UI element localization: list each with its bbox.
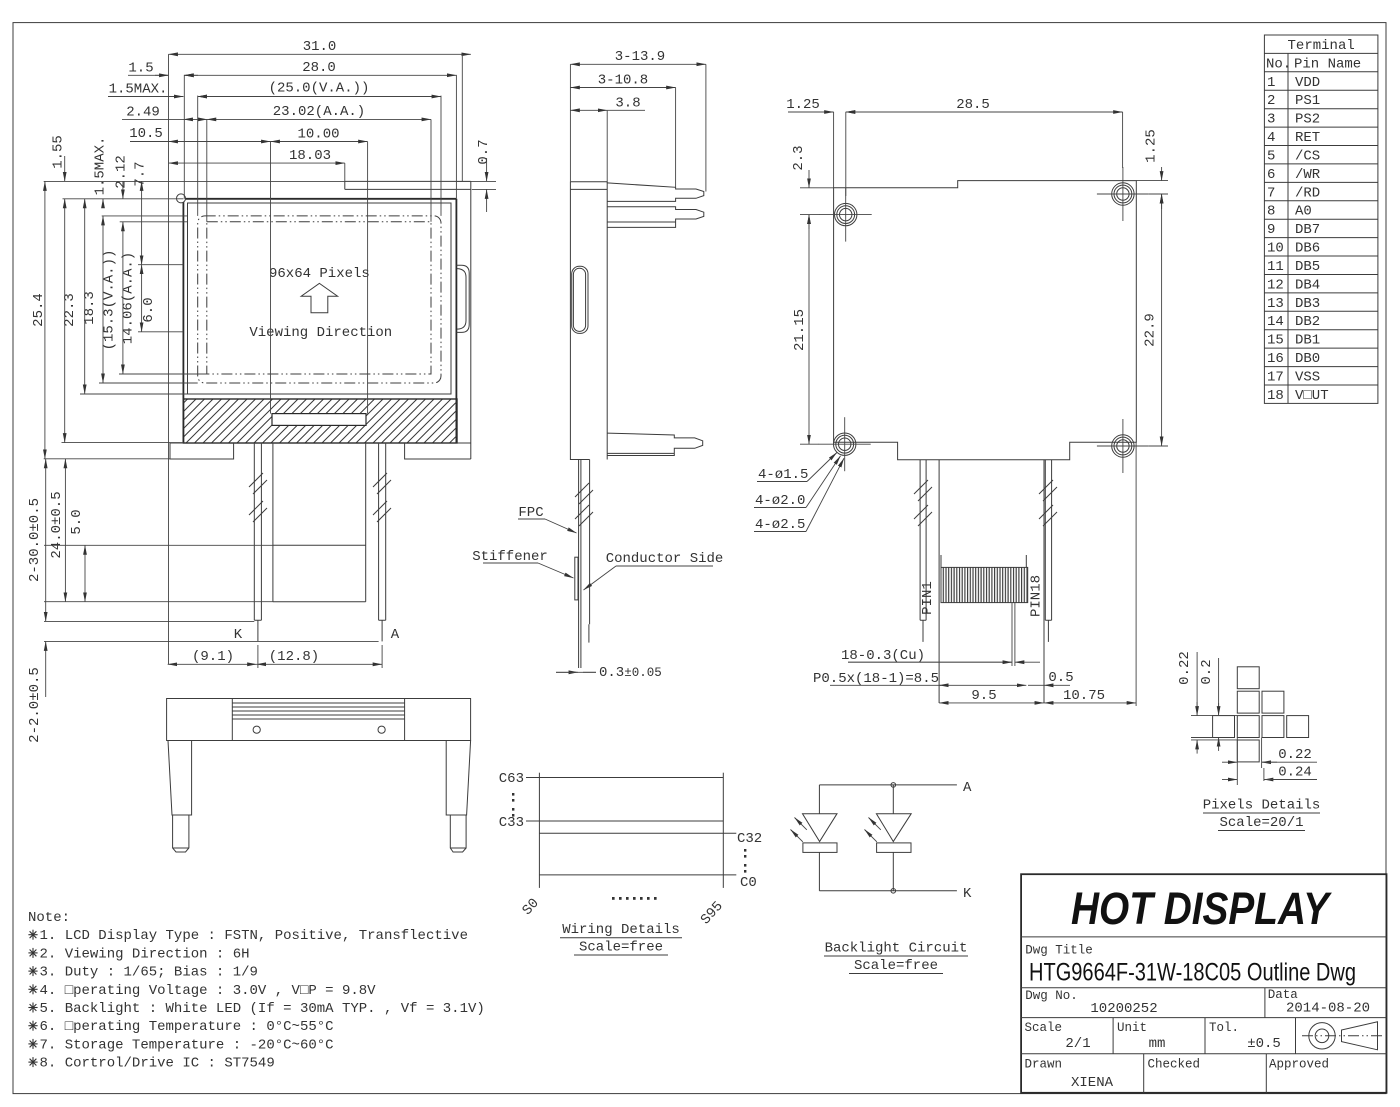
svg-text:PIN1: PIN1 xyxy=(920,581,936,615)
svg-text:13: 13 xyxy=(1267,296,1284,312)
svg-text:C63: C63 xyxy=(499,771,524,787)
svg-text:DB6: DB6 xyxy=(1295,241,1320,257)
svg-text:0.22: 0.22 xyxy=(1278,747,1312,763)
svg-text:Wiring Details: Wiring Details xyxy=(562,922,680,938)
svg-text:2/1: 2/1 xyxy=(1065,1036,1090,1052)
svg-text:1.25: 1.25 xyxy=(1144,129,1160,163)
svg-text:Checked: Checked xyxy=(1148,1058,1201,1072)
svg-text:VSS: VSS xyxy=(1295,369,1320,385)
svg-text:Scale=20/1: Scale=20/1 xyxy=(1219,815,1303,831)
svg-text:PS2: PS2 xyxy=(1295,112,1320,128)
svg-text:28.0: 28.0 xyxy=(302,60,336,76)
svg-text:(25.0(V.A.)): (25.0(V.A.)) xyxy=(269,81,370,97)
svg-text:7.7: 7.7 xyxy=(133,161,149,186)
svg-text:2-2.0±0.5: 2-2.0±0.5 xyxy=(27,667,43,743)
svg-text:DB0: DB0 xyxy=(1295,351,1320,367)
svg-text:2.49: 2.49 xyxy=(126,105,160,121)
svg-text:4: 4 xyxy=(1267,130,1275,146)
svg-text:2.12: 2.12 xyxy=(114,155,130,189)
svg-text:A: A xyxy=(391,627,400,643)
svg-text:Scale=free: Scale=free xyxy=(579,940,663,956)
svg-text:17: 17 xyxy=(1267,369,1284,385)
svg-text:23.02(A.A.): 23.02(A.A.) xyxy=(273,104,365,120)
svg-text:10200252: 10200252 xyxy=(1090,1001,1157,1017)
svg-text:DB2: DB2 xyxy=(1295,314,1320,330)
svg-text:Pixels Details: Pixels Details xyxy=(1203,798,1321,814)
svg-text:10: 10 xyxy=(1267,241,1284,257)
svg-text:Note:: Note: xyxy=(28,910,70,926)
svg-text:2014-08-20: 2014-08-20 xyxy=(1286,1001,1370,1017)
svg-text:(15.3(V.A.)): (15.3(V.A.)) xyxy=(102,250,118,351)
svg-text:15: 15 xyxy=(1267,333,1284,349)
svg-text:1.5MAX.: 1.5MAX. xyxy=(109,82,168,98)
svg-text:No.: No. xyxy=(1266,56,1291,72)
svg-text:A0: A0 xyxy=(1295,204,1312,220)
svg-text:4. □perating Voltage : 3.0V ,: 4. □perating Voltage : 3.0V , V□P = 9.8V xyxy=(40,983,377,999)
svg-text:3-10.8: 3-10.8 xyxy=(598,73,648,89)
svg-text:10.75: 10.75 xyxy=(1063,688,1105,704)
svg-text:PIN18: PIN18 xyxy=(1029,575,1045,617)
svg-text:XIENA: XIENA xyxy=(1071,1075,1114,1091)
svg-text:DB7: DB7 xyxy=(1295,222,1320,238)
svg-text:96x64 Pixels: 96x64 Pixels xyxy=(269,266,370,282)
svg-text:HOT DISPLAY: HOT DISPLAY xyxy=(1071,883,1332,934)
svg-text:Approved: Approved xyxy=(1269,1058,1329,1072)
svg-text:5.0: 5.0 xyxy=(69,509,85,534)
svg-text:/RD: /RD xyxy=(1295,185,1320,201)
svg-text:1.5: 1.5 xyxy=(128,61,153,77)
svg-text:Tol.: Tol. xyxy=(1209,1021,1239,1035)
svg-text:A: A xyxy=(963,780,972,796)
svg-text:6. □perating Temperature : 0°C: 6. □perating Temperature : 0°C~55°C xyxy=(40,1019,334,1035)
svg-text:6.0: 6.0 xyxy=(141,297,157,322)
svg-text:11: 11 xyxy=(1267,259,1284,275)
svg-text:/CS: /CS xyxy=(1295,148,1320,164)
svg-text:7. Storage Temperature : -20°C: 7. Storage Temperature : -20°C~60°C xyxy=(40,1037,334,1053)
svg-text:0.5: 0.5 xyxy=(1048,670,1073,686)
svg-text:DB5: DB5 xyxy=(1295,259,1320,275)
svg-text:3. Duty : 1/65; Bias : 1/9: 3. Duty : 1/65; Bias : 1/9 xyxy=(40,965,258,981)
svg-text:5: 5 xyxy=(1267,148,1275,164)
svg-text:DB3: DB3 xyxy=(1295,296,1320,312)
svg-text:18: 18 xyxy=(1267,388,1284,404)
svg-text:0.3±0.05: 0.3±0.05 xyxy=(599,665,662,681)
svg-text:2.3: 2.3 xyxy=(791,145,807,170)
svg-text:PS1: PS1 xyxy=(1295,93,1320,109)
svg-text:C33: C33 xyxy=(499,815,524,831)
svg-text:3: 3 xyxy=(1267,112,1275,128)
svg-text:K: K xyxy=(963,886,972,902)
svg-text:10.00: 10.00 xyxy=(297,127,339,143)
svg-text:Scale=free: Scale=free xyxy=(854,958,938,974)
svg-text:14: 14 xyxy=(1267,314,1284,330)
svg-text:Conductor Side: Conductor Side xyxy=(606,551,724,567)
svg-text:DB1: DB1 xyxy=(1295,333,1320,349)
svg-text:Dwg No.: Dwg No. xyxy=(1025,989,1078,1003)
svg-text:6: 6 xyxy=(1267,167,1275,183)
svg-text:(9.1): (9.1) xyxy=(192,649,234,665)
svg-text:18-0.3(Cu): 18-0.3(Cu) xyxy=(841,648,925,664)
svg-text:3-13.9: 3-13.9 xyxy=(615,49,665,65)
svg-text:V□UT: V□UT xyxy=(1295,388,1329,404)
svg-text:P0.5x(18-1)=8.5: P0.5x(18-1)=8.5 xyxy=(813,671,939,687)
svg-text:Terminal: Terminal xyxy=(1288,38,1355,54)
svg-text:0.2: 0.2 xyxy=(1199,659,1215,684)
svg-text:28.5: 28.5 xyxy=(956,97,990,113)
svg-text:18.03: 18.03 xyxy=(289,148,331,164)
svg-text:9: 9 xyxy=(1267,222,1275,238)
svg-text:7: 7 xyxy=(1267,185,1275,201)
svg-text:VDD: VDD xyxy=(1295,75,1320,91)
svg-text:2-30.0±0.5: 2-30.0±0.5 xyxy=(27,498,43,582)
svg-text:/WR: /WR xyxy=(1295,167,1321,183)
svg-text:C0: C0 xyxy=(740,875,757,891)
svg-text:5. Backlight : White LED (If =: 5. Backlight : White LED (If = 30mA TYP.… xyxy=(40,1001,485,1017)
svg-text:1.5MAX.: 1.5MAX. xyxy=(93,137,109,196)
svg-text:4-ø2.5: 4-ø2.5 xyxy=(755,517,805,533)
svg-text:2: 2 xyxy=(1267,93,1275,109)
svg-text:Backlight Circuit: Backlight Circuit xyxy=(825,941,968,957)
svg-text:0.7: 0.7 xyxy=(476,139,492,164)
svg-text:Pin Name: Pin Name xyxy=(1294,56,1361,72)
svg-text:Dwg Title: Dwg Title xyxy=(1025,944,1093,958)
svg-text:1: 1 xyxy=(1267,75,1275,91)
svg-text:Drawn: Drawn xyxy=(1025,1058,1063,1072)
svg-text:4-ø2.0: 4-ø2.0 xyxy=(755,493,805,509)
svg-text:2. Viewing Direction : 6H: 2. Viewing Direction : 6H xyxy=(40,946,250,962)
svg-text:1. LCD Display Type : FSTN, Po: 1. LCD Display Type : FSTN, Positive, Tr… xyxy=(40,928,468,944)
svg-text:16: 16 xyxy=(1267,351,1284,367)
svg-text:12: 12 xyxy=(1267,277,1284,293)
svg-text:10.5: 10.5 xyxy=(129,126,163,142)
svg-text:4-ø1.5: 4-ø1.5 xyxy=(758,467,808,483)
svg-text:K: K xyxy=(234,627,243,643)
svg-text:HTG9664F-31W-18C05 Outline Dwg: HTG9664F-31W-18C05 Outline Dwg xyxy=(1029,959,1356,987)
svg-text:3.8: 3.8 xyxy=(615,96,640,112)
svg-text:DB4: DB4 xyxy=(1295,277,1320,293)
svg-text:31.0: 31.0 xyxy=(303,39,337,55)
svg-text:Unit: Unit xyxy=(1117,1021,1147,1035)
svg-text:9.5: 9.5 xyxy=(971,688,996,704)
svg-text:1.25: 1.25 xyxy=(786,97,820,113)
svg-text:RET: RET xyxy=(1295,130,1320,146)
svg-text:±0.5: ±0.5 xyxy=(1247,1036,1281,1052)
svg-text:Scale: Scale xyxy=(1025,1021,1063,1035)
svg-text:0.22: 0.22 xyxy=(1177,651,1193,685)
svg-text:8. Cortrol/Drive IC : ST7549: 8. Cortrol/Drive IC : ST7549 xyxy=(40,1056,275,1072)
svg-text:C32: C32 xyxy=(737,831,762,847)
svg-text:(12.8): (12.8) xyxy=(269,649,319,665)
svg-text:mm: mm xyxy=(1149,1036,1166,1052)
svg-text:24.0±0.5: 24.0±0.5 xyxy=(49,491,65,558)
svg-text:22.9: 22.9 xyxy=(1143,313,1159,347)
svg-text:21.15: 21.15 xyxy=(792,309,808,351)
svg-text:0.24: 0.24 xyxy=(1278,765,1312,781)
svg-text:8: 8 xyxy=(1267,204,1275,220)
